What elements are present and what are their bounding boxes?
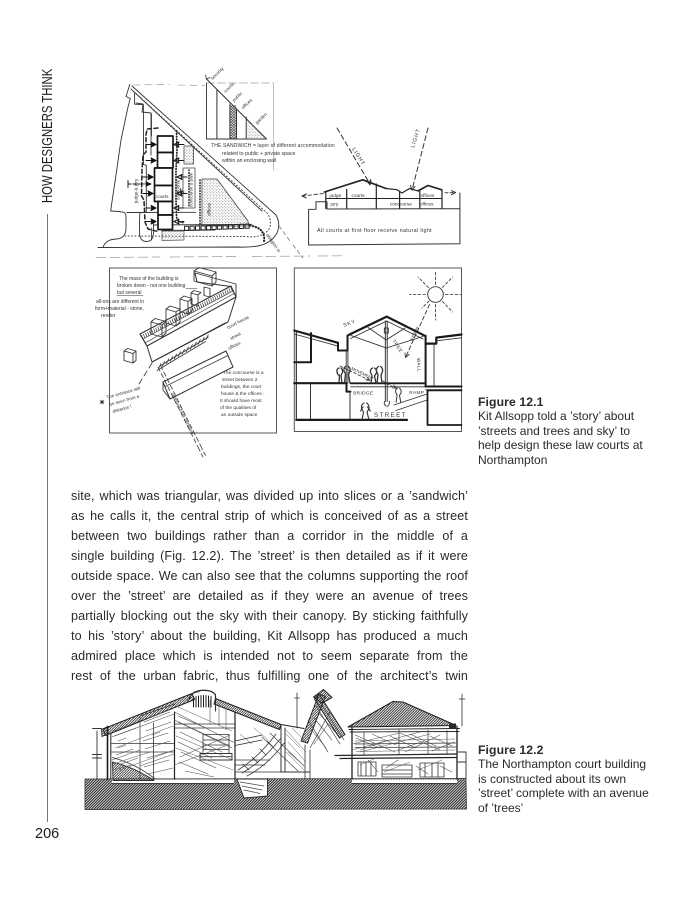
svg-text:SKY: SKY bbox=[343, 319, 357, 329]
svg-text:an outside space: an outside space bbox=[221, 412, 258, 418]
svg-text:public: public bbox=[231, 90, 244, 102]
svg-text:STREET: STREET bbox=[374, 412, 407, 419]
svg-text:concourse: concourse bbox=[176, 179, 181, 200]
svg-text:of the qualities of: of the qualities of bbox=[220, 405, 257, 411]
svg-text:courts: courts bbox=[352, 193, 366, 199]
svg-text:All courts at first floor rece: All courts at first floor receive natura… bbox=[317, 228, 432, 234]
svg-text:RAMP: RAMP bbox=[409, 390, 424, 396]
svg-text:offices: offices bbox=[240, 97, 253, 110]
svg-text:offices: offices bbox=[420, 202, 434, 208]
svg-text:buildings, the court: buildings, the court bbox=[221, 384, 262, 390]
svg-text:judge: judge bbox=[329, 193, 342, 199]
svg-text:It should have most: It should have most bbox=[220, 398, 262, 404]
svg-text:reached from between: reached from between bbox=[170, 392, 195, 435]
svg-text:within an enclosing wall: within an enclosing wall bbox=[222, 158, 276, 164]
svg-text:offices: offices bbox=[207, 202, 212, 216]
svg-text:concourse: concourse bbox=[390, 202, 412, 208]
svg-text:broken down - not one building: broken down - not one building bbox=[117, 283, 186, 289]
svg-text:all-ons are different in: all-ons are different in bbox=[96, 299, 144, 305]
svg-text:concourse & park: concourse & park bbox=[189, 172, 194, 207]
svg-text:related to public + private sp: related to public + private space bbox=[222, 151, 296, 157]
svg-text:courts: courts bbox=[156, 194, 169, 199]
svg-text:street between 2: street between 2 bbox=[222, 377, 258, 383]
svg-text:security: security bbox=[210, 66, 225, 81]
svg-text:render: render bbox=[101, 313, 116, 319]
svg-text:but several: but several bbox=[117, 290, 141, 296]
svg-text:BRIDGE: BRIDGE bbox=[353, 390, 373, 396]
svg-text:house & the offices -: house & the offices - bbox=[221, 391, 265, 397]
svg-text:judge & jury: judge & jury bbox=[134, 178, 139, 204]
svg-text:jury: jury bbox=[330, 202, 339, 208]
svg-text:garden: garden bbox=[254, 111, 268, 125]
svg-text:abington st: abington st bbox=[265, 233, 282, 254]
svg-text:The mass of the building is: The mass of the building is bbox=[119, 276, 179, 282]
svg-text:THE SANDWICH = layer of differ: THE SANDWICH = layer of different accomm… bbox=[211, 143, 335, 149]
svg-text:The concourse is a: The concourse is a bbox=[223, 370, 264, 376]
svg-text:LIGHT: LIGHT bbox=[410, 128, 422, 149]
svg-text:form+material - stone,: form+material - stone, bbox=[95, 306, 144, 312]
svg-text:WALL: WALL bbox=[416, 358, 421, 373]
svg-text:offices: offices bbox=[227, 340, 242, 351]
svg-text:street: street bbox=[229, 331, 242, 341]
svg-text:offices: offices bbox=[421, 193, 435, 199]
